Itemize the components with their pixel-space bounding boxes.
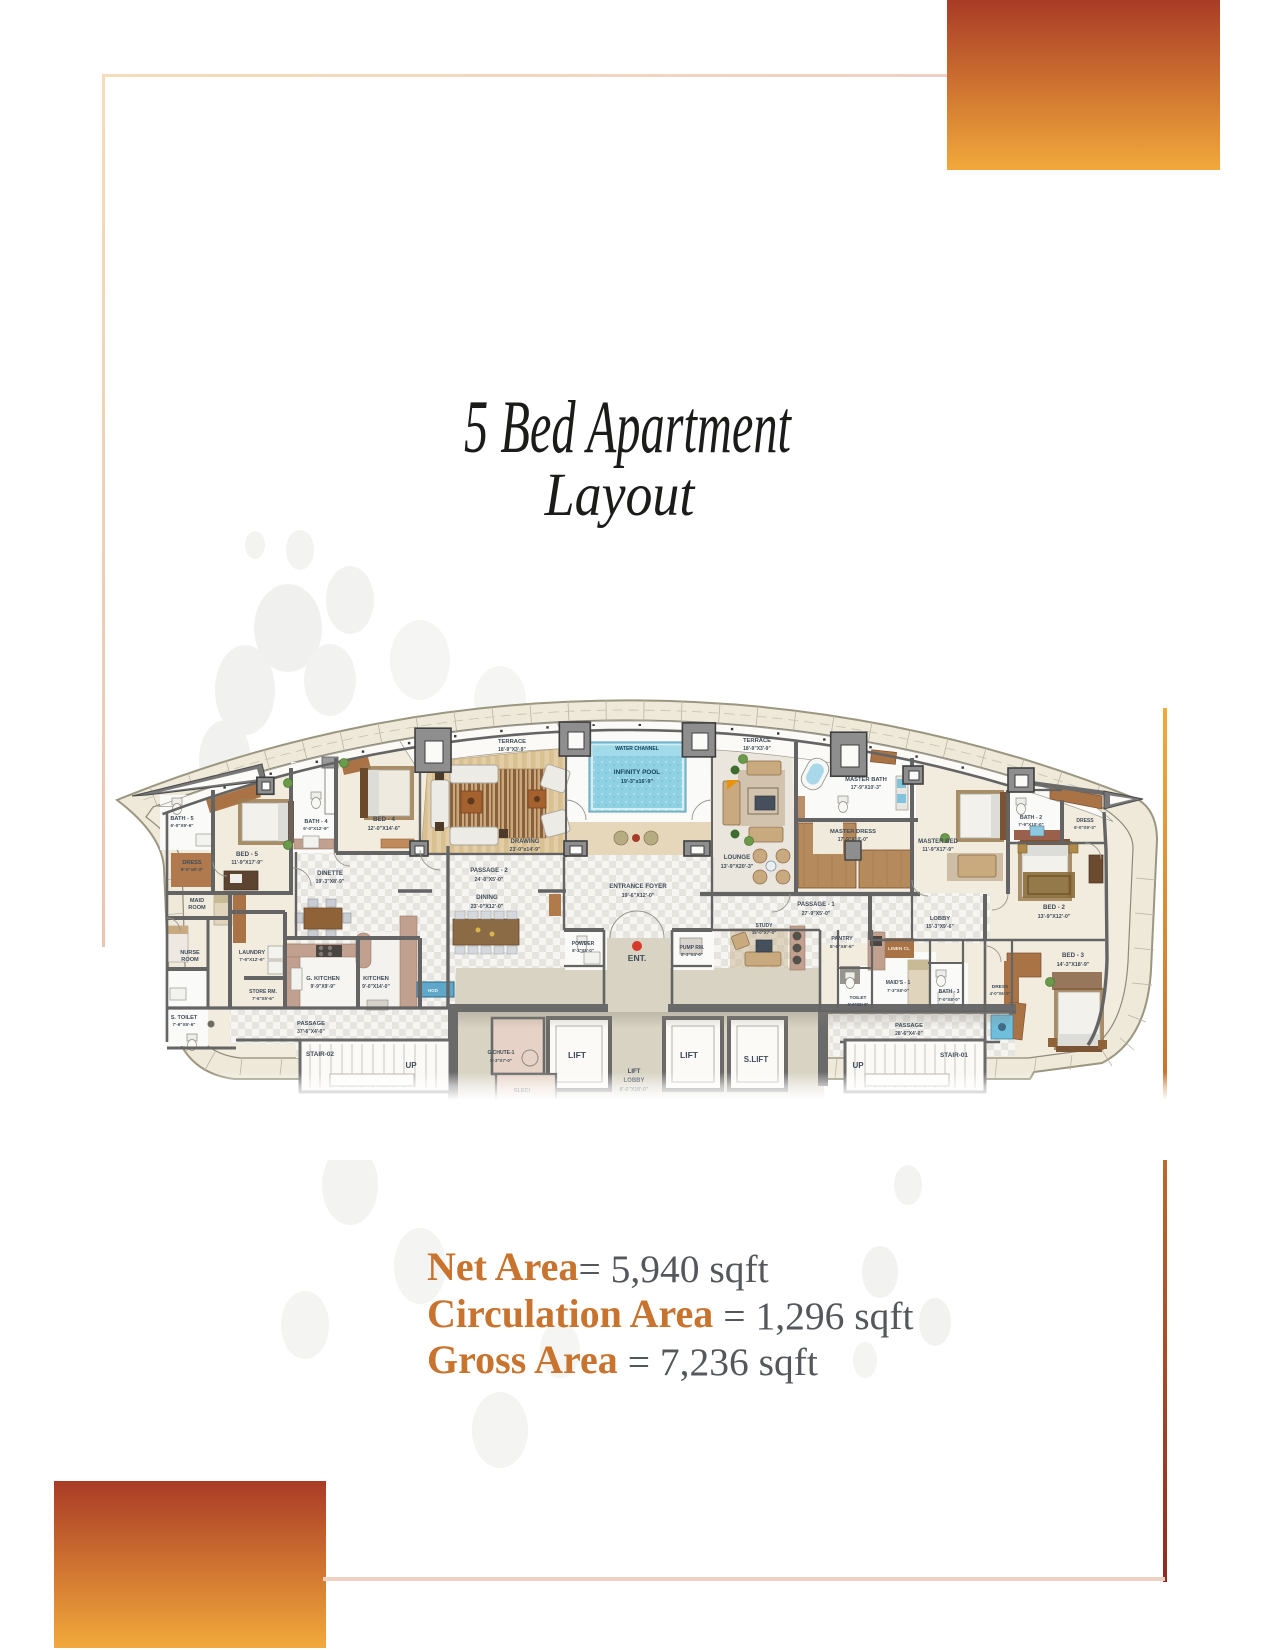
svg-text:BED - 3: BED - 3 (1062, 952, 1085, 959)
svg-text:17'-9"X10'-0": 17'-9"X10'-0" (838, 837, 869, 843)
svg-text:BED - 5: BED - 5 (236, 851, 259, 858)
svg-text:8'-3"X4'-0": 8'-3"X4'-0" (681, 952, 703, 957)
svg-text:9'-9"X9'-9": 9'-9"X9'-9" (311, 984, 337, 990)
svg-text:4'-0"X6'-0": 4'-0"X6'-0" (990, 991, 1011, 996)
svg-text:ENTRANCE FOYER: ENTRANCE FOYER (609, 883, 667, 890)
svg-text:DRESS: DRESS (182, 860, 202, 866)
svg-text:STORE RM.: STORE RM. (249, 989, 277, 995)
svg-text:19'-3"x16'-9": 19'-3"x16'-9" (621, 779, 654, 785)
svg-text:ROOM: ROOM (188, 905, 206, 911)
svg-text:DINETTE: DINETTE (317, 871, 343, 877)
svg-text:15'-3"X9'-6": 15'-3"X9'-6" (926, 924, 954, 930)
svg-text:18'-9"X3'-9": 18'-9"X3'-9" (743, 746, 771, 752)
svg-text:STUDY: STUDY (756, 923, 774, 929)
svg-text:BATH - 3: BATH - 3 (939, 989, 960, 995)
svg-text:9'-0"X14'-0": 9'-0"X14'-0" (362, 984, 390, 990)
svg-text:13'-9"X12'-0": 13'-9"X12'-0" (1038, 914, 1071, 920)
svg-text:7'-6"X5'-6": 7'-6"X5'-6" (252, 996, 274, 1001)
svg-text:13'-9"X20'-3": 13'-9"X20'-3" (721, 864, 754, 870)
svg-text:6'-0"X9'-6": 6'-0"X9'-6" (171, 823, 194, 828)
svg-text:DRESS: DRESS (992, 984, 1009, 990)
svg-text:23'-0"x14'-9": 23'-0"x14'-9" (509, 847, 541, 853)
svg-text:DRESS: DRESS (1076, 818, 1094, 824)
svg-text:INFINITY POOL: INFINITY POOL (614, 769, 660, 776)
svg-text:DINING: DINING (476, 894, 498, 901)
svg-text:PASSAGE: PASSAGE (297, 1021, 325, 1027)
svg-text:PASSAGE - 2: PASSAGE - 2 (470, 868, 508, 874)
svg-text:G. KITCHEN: G. KITCHEN (306, 976, 340, 982)
svg-text:8'-3"X5'-0": 8'-3"X5'-0" (572, 948, 594, 953)
svg-text:LINEN CL: LINEN CL (888, 946, 910, 952)
svg-text:PANTRY: PANTRY (831, 936, 853, 942)
svg-text:7'-0"X8'-0": 7'-0"X8'-0" (938, 997, 960, 1002)
svg-text:BED - 4: BED - 4 (373, 816, 396, 823)
svg-text:27'-9"X5'-0": 27'-9"X5'-0" (802, 911, 831, 917)
svg-text:ENT.: ENT. (628, 953, 646, 963)
svg-text:11'-9"X17'-9": 11'-9"X17'-9" (922, 847, 954, 853)
svg-text:WATER CHANNEL: WATER CHANNEL (615, 746, 659, 752)
svg-text:LOBBY: LOBBY (930, 916, 950, 922)
svg-text:PASSAGE - 1: PASSAGE - 1 (797, 902, 835, 908)
svg-text:7'-9"X10'-0": 7'-9"X10'-0" (1018, 822, 1043, 827)
svg-text:HOD: HOD (428, 988, 438, 993)
svg-text:PUMP RM.: PUMP RM. (680, 945, 706, 951)
svg-text:MASTER BED: MASTER BED (918, 839, 958, 845)
svg-text:BED - 2: BED - 2 (1043, 904, 1066, 911)
svg-text:TOILET: TOILET (850, 995, 867, 1001)
svg-text:19'-6"X12'-0": 19'-6"X12'-0" (622, 893, 655, 899)
svg-text:6'-0"x9'-3": 6'-0"x9'-3" (181, 867, 203, 872)
svg-text:6'-0"X12'-9": 6'-0"X12'-9" (303, 826, 328, 831)
svg-text:19'-3"X8'-9": 19'-3"X8'-9" (316, 879, 345, 885)
svg-text:6'-0"X9'-3": 6'-0"X9'-3" (1074, 825, 1096, 830)
svg-text:BATH - 4: BATH - 4 (304, 819, 328, 825)
svg-text:LOUNGE: LOUNGE (724, 854, 750, 861)
svg-text:24'-0"X5'-0": 24'-0"X5'-0" (475, 877, 504, 883)
svg-text:7'-6"X5'-6": 7'-6"X5'-6" (173, 1022, 196, 1027)
svg-text:DRAWING: DRAWING (511, 839, 540, 845)
svg-text:17'-9"X10'-3": 17'-9"X10'-3" (851, 785, 882, 791)
svg-text:BATH - 2: BATH - 2 (1020, 815, 1042, 821)
svg-text:MASTER BATH: MASTER BATH (845, 777, 887, 783)
svg-text:5'-9"X5'-6": 5'-9"X5'-6" (848, 1002, 869, 1007)
svg-text:S. TOILET: S. TOILET (171, 1015, 198, 1021)
svg-text:ROOM: ROOM (181, 957, 199, 963)
svg-text:MAID'S - 1: MAID'S - 1 (886, 980, 911, 986)
svg-text:KITCHEN: KITCHEN (363, 976, 389, 982)
svg-text:TERRACE: TERRACE (498, 739, 526, 745)
svg-text:8'-6"X6'-6": 8'-6"X6'-6" (830, 944, 854, 950)
svg-text:MASTER DRESS: MASTER DRESS (830, 829, 876, 835)
svg-text:7'-6"X12'-6": 7'-6"X12'-6" (239, 957, 264, 962)
svg-text:TERRACE: TERRACE (743, 738, 771, 744)
svg-text:11'-9"X17'-9": 11'-9"X17'-9" (231, 860, 263, 866)
svg-text:23'-0"X12'-0": 23'-0"X12'-0" (471, 904, 504, 910)
svg-text:14'-3"X18'-9": 14'-3"X18'-9" (1057, 962, 1090, 968)
svg-text:POWDER: POWDER (572, 941, 595, 947)
svg-text:MAID: MAID (190, 898, 204, 904)
svg-text:18'-9"X3'-9": 18'-9"X3'-9" (498, 747, 526, 753)
svg-text:LAUNDRY: LAUNDRY (239, 950, 266, 956)
svg-text:15'-0"X7'-0": 15'-0"X7'-0" (752, 930, 776, 935)
svg-text:NURSE: NURSE (180, 950, 200, 956)
svg-text:12'-0"X14'-6": 12'-0"X14'-6" (368, 826, 401, 832)
svg-text:7'-3"X8'-0": 7'-3"X8'-0" (887, 988, 909, 993)
svg-text:BATH - 5: BATH - 5 (170, 816, 193, 822)
